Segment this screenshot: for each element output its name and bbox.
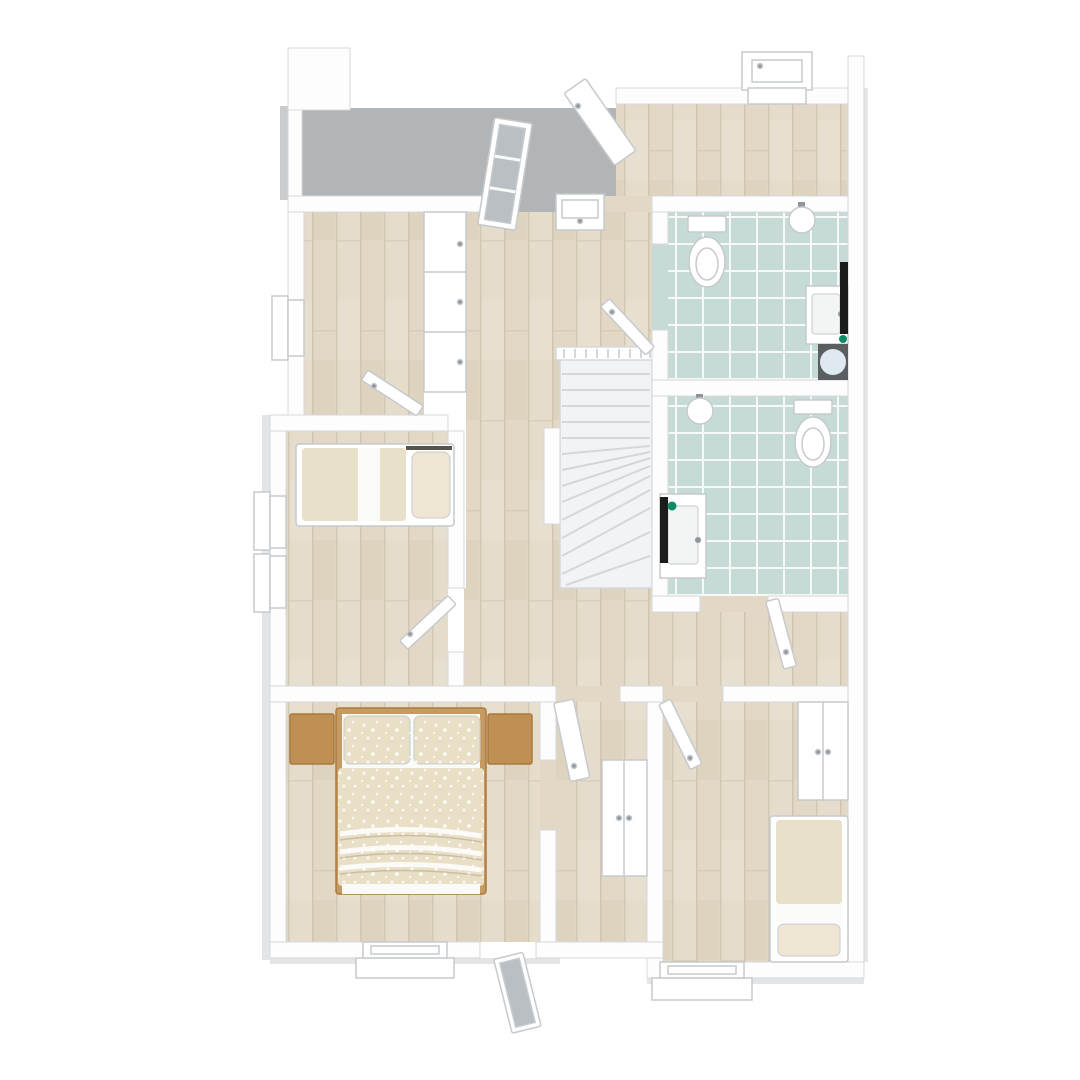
wall-segment xyxy=(270,548,286,556)
wall-segment xyxy=(270,415,448,431)
door-handle xyxy=(688,756,693,761)
wall-segment xyxy=(723,686,848,702)
window-latch xyxy=(758,64,763,69)
bed-sheet-band xyxy=(358,448,380,521)
wall-segment xyxy=(270,608,286,958)
door-handle xyxy=(784,650,789,655)
wardrobe xyxy=(798,702,848,800)
window-sill xyxy=(254,492,270,550)
wall-segment xyxy=(616,88,748,104)
vanity-basin xyxy=(812,294,840,334)
bed-mattress xyxy=(776,820,842,904)
window-frame xyxy=(748,88,806,104)
window-pane xyxy=(371,946,439,954)
vanity-tap xyxy=(695,537,701,543)
wall-segment xyxy=(536,942,663,958)
closet-handle xyxy=(627,816,632,821)
bed-sheet-band xyxy=(776,904,842,922)
wall-segment xyxy=(448,652,464,686)
wall-segment xyxy=(652,380,848,396)
shadow-right-wall xyxy=(864,88,868,962)
doorway-floor-hall xyxy=(556,686,620,702)
wardrobe-handle xyxy=(826,750,831,755)
towel-radiator xyxy=(840,262,848,334)
closet-handle xyxy=(617,816,622,821)
closet-handle xyxy=(458,242,463,247)
door-handle xyxy=(372,384,377,389)
wall-segment xyxy=(270,431,286,496)
wall-segment xyxy=(647,702,663,978)
bed-foot-sheet xyxy=(342,884,480,894)
toilet-tank xyxy=(794,400,832,414)
window-landing xyxy=(742,52,812,104)
wardrobe-handle xyxy=(816,750,821,755)
vanity-basin xyxy=(668,506,698,564)
door-handle xyxy=(408,632,413,637)
pillow-pattern xyxy=(344,716,480,764)
window-sill xyxy=(254,554,270,612)
window-frame xyxy=(270,556,286,608)
bed-pillow xyxy=(412,452,450,518)
stair-side-wall xyxy=(544,428,560,524)
single-bed-right xyxy=(770,816,848,962)
window-pane xyxy=(562,200,598,218)
wall-segment xyxy=(447,942,480,958)
single-bed-kids xyxy=(296,444,454,526)
window-sill xyxy=(356,958,454,978)
floorplan-canvas xyxy=(0,0,1080,1080)
wall-segment xyxy=(270,942,363,958)
accent-ball xyxy=(839,335,847,343)
wall-segment xyxy=(744,962,864,978)
wall-segment xyxy=(288,48,350,110)
doorway-floor-master xyxy=(540,760,556,830)
doorway-floor-bedroom xyxy=(663,686,723,702)
wall-segment xyxy=(540,702,556,760)
nightstand-right xyxy=(488,714,532,764)
wall-segment xyxy=(652,596,700,612)
wall-segment xyxy=(652,196,848,212)
french-door xyxy=(494,952,541,1033)
window-kids-1 xyxy=(254,492,286,550)
closet-handle xyxy=(458,300,463,305)
window-kids-2 xyxy=(254,554,286,612)
landing-passage-floor xyxy=(604,196,652,212)
wall-segment xyxy=(620,686,663,702)
toilet xyxy=(688,216,726,287)
bathroom1-doorway-floor xyxy=(652,244,668,330)
door-handle xyxy=(610,310,615,315)
plank-overlay xyxy=(304,212,424,415)
window-sill xyxy=(652,978,752,1000)
hallway-closet xyxy=(424,212,466,392)
hall-linen-closet xyxy=(602,760,647,876)
sink-basin xyxy=(789,207,815,233)
towel-radiator xyxy=(660,497,668,563)
plank-overlay xyxy=(652,612,848,686)
window-latch xyxy=(578,219,583,224)
nightstand-left xyxy=(290,714,334,764)
window-sill xyxy=(272,296,288,360)
wall-segment xyxy=(288,356,304,415)
bed-seam xyxy=(406,446,452,450)
bed-mattress xyxy=(302,448,406,521)
closet-handle xyxy=(458,360,463,365)
window-bedroom-right xyxy=(652,962,752,1000)
plank-overlay xyxy=(616,104,848,196)
door-handle xyxy=(572,764,577,769)
door-handle xyxy=(576,104,581,109)
wall-segment xyxy=(848,56,864,962)
window-study xyxy=(272,296,304,360)
wall-segment xyxy=(288,110,302,196)
window-frame xyxy=(270,496,286,548)
staircase xyxy=(544,347,656,588)
doorway-floor-bath2 xyxy=(700,596,768,612)
wall-segment xyxy=(288,212,304,300)
accent-ball xyxy=(668,502,677,511)
wall-segment xyxy=(652,212,668,244)
wall-segment xyxy=(540,830,556,958)
wall-segment xyxy=(288,196,488,212)
bed-pillow xyxy=(778,924,840,956)
window-master xyxy=(356,942,454,978)
wall-segment xyxy=(270,686,556,702)
window-frame xyxy=(288,300,304,356)
round-mat xyxy=(820,349,846,375)
toilet-tank xyxy=(688,216,726,232)
window-pane xyxy=(668,966,736,974)
plank-overlay xyxy=(464,588,652,686)
sink-basin xyxy=(687,398,713,424)
window-terrace xyxy=(556,194,604,230)
toilet xyxy=(794,400,832,467)
